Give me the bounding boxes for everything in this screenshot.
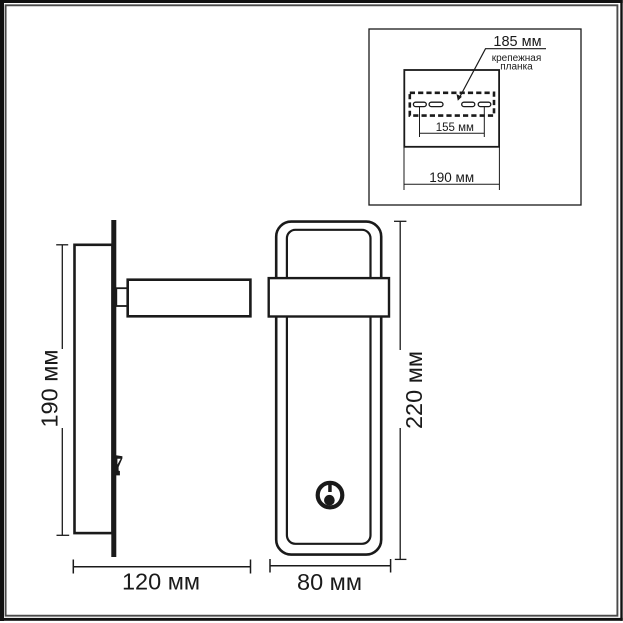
svg-text:120 мм: 120 мм [122, 569, 200, 595]
svg-text:190 мм: 190 мм [429, 170, 474, 185]
svg-text:155 мм: 155 мм [436, 122, 474, 134]
svg-text:185 мм: 185 мм [493, 34, 541, 50]
svg-text:планка: планка [500, 61, 533, 72]
svg-text:220 мм: 220 мм [401, 351, 427, 429]
svg-text:80 мм: 80 мм [297, 569, 362, 595]
svg-text:190 мм: 190 мм [36, 349, 62, 427]
